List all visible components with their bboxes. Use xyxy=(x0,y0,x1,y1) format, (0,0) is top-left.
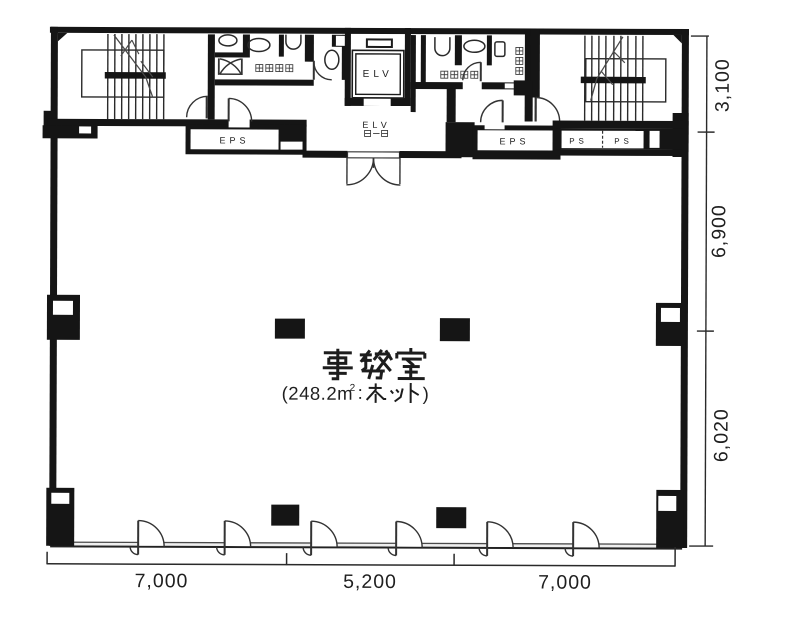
svg-text:ELV: ELV xyxy=(363,69,393,80)
svg-text:6,020: 6,020 xyxy=(710,408,732,462)
svg-text:ELV: ELV xyxy=(362,120,390,130)
svg-text:EPS: EPS xyxy=(220,135,250,145)
svg-text:PS: PS xyxy=(614,137,633,146)
svg-text:7,000: 7,000 xyxy=(135,570,189,592)
svg-text:EPS: EPS xyxy=(500,136,530,146)
svg-text:(248.2m: (248.2m xyxy=(282,383,353,404)
svg-text:7,000: 7,000 xyxy=(538,572,592,594)
svg-text:): ) xyxy=(423,383,430,404)
svg-text:PS: PS xyxy=(569,137,588,146)
svg-text::: : xyxy=(358,382,364,403)
svg-text:2: 2 xyxy=(350,383,357,394)
svg-text:6,900: 6,900 xyxy=(708,204,730,258)
svg-text:5,200: 5,200 xyxy=(343,571,397,593)
svg-text:3,100: 3,100 xyxy=(712,58,734,112)
